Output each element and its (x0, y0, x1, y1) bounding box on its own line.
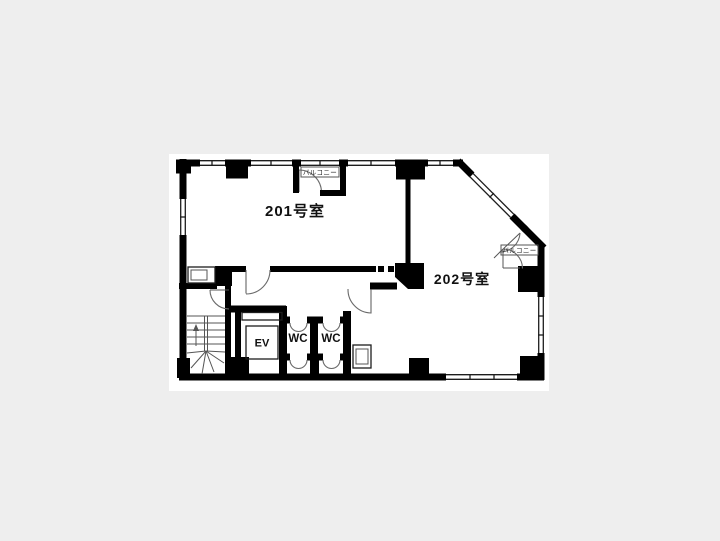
column-top-left (176, 160, 191, 174)
wc-vestibule-divider (310, 357, 319, 378)
balcony-east-label: バルコニー (502, 247, 536, 255)
room-201-label: 201号室 (265, 202, 325, 220)
elevator-label: EV (255, 338, 270, 350)
floor-plan: バルコニー バルコニー (0, 0, 720, 541)
wc-left-label: WC (288, 333, 307, 345)
column-bottom-right (520, 356, 544, 379)
column-bottom-mid (409, 358, 429, 376)
column-top-1 (226, 160, 248, 179)
balcony-north-label: バルコニー (303, 169, 337, 177)
room-202-label: 202号室 (434, 271, 490, 287)
screenshot-canvas: バルコニー バルコニー (0, 0, 720, 541)
column-bottom-left (177, 358, 190, 378)
wc-right-label: WC (321, 333, 340, 345)
column-right-mid (518, 266, 544, 292)
